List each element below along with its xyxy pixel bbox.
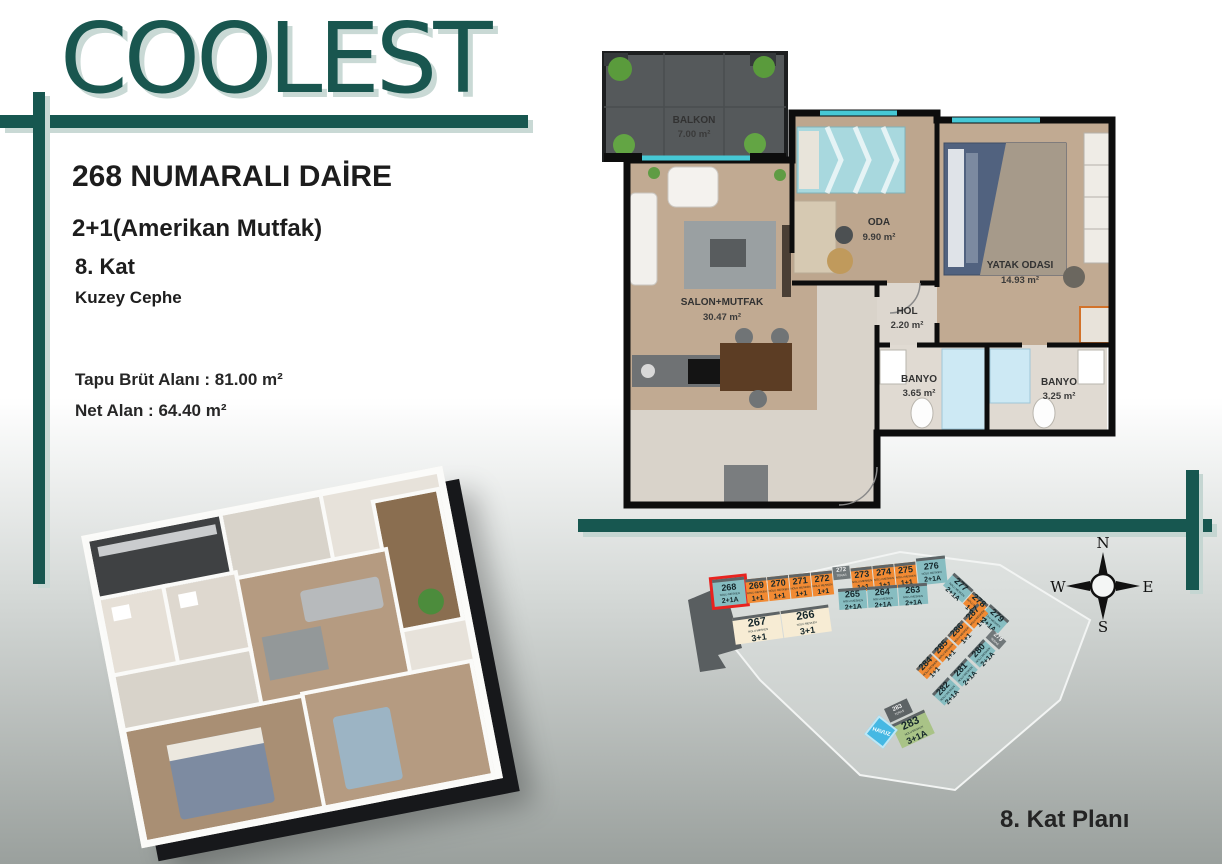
gross-area-value: 81.00 m² [215, 370, 283, 389]
room-label-salon: SALON+MUTFAK [681, 297, 764, 308]
cabinet [724, 465, 768, 503]
gross-area-label: Tapu Brüt Alanı : [75, 370, 210, 389]
floorplan-2d: BALKON 7.00 m² SALON+MUTFAK 30.47 m² ODA… [592, 25, 1122, 517]
brand-logo: COOLEST [60, 2, 489, 115]
unit-number: 265 [845, 589, 861, 599]
room-area-hol: 2.20 m² [891, 320, 924, 331]
room-area-yatak: 14.93 m² [1001, 275, 1039, 286]
unit-type: 1+1 [795, 590, 808, 598]
apartment-floor: 8. Kat [75, 254, 135, 280]
compass-circle [1091, 574, 1115, 598]
render-bathroom-2 [165, 575, 249, 665]
siteplan-unit-264[interactable]: 264 NOLU MESKEN 2+1A [867, 585, 898, 608]
plant-icon [744, 133, 766, 155]
sofa [630, 193, 657, 285]
teras-label: TERAS [837, 574, 847, 578]
siteplan-unit-268[interactable]: 268 NOLU MESKEN 2+1A [712, 577, 747, 607]
room-label-banyo2: BANYO [1041, 377, 1077, 388]
pillow [966, 153, 978, 263]
plant-icon [753, 56, 775, 78]
stove [688, 359, 722, 384]
divider-horizontal-bottom [578, 519, 1212, 532]
unit-type: 1+1 [773, 592, 786, 600]
plant-icon [648, 167, 660, 179]
plant-icon [613, 134, 635, 156]
pillow [948, 149, 964, 267]
net-area-value: 64.40 m² [158, 401, 226, 420]
unit-type: 2+1A [875, 601, 892, 609]
compass-arrow-w [1066, 581, 1090, 591]
dining-table [720, 343, 792, 391]
plant-icon [608, 57, 632, 81]
room-area-banyo1: 3.65 m² [903, 388, 936, 399]
unit-number: 264 [875, 587, 891, 597]
apartment-type: 2+1(Amerikan Mutfak) [72, 215, 322, 243]
page-title: 268 NUMARALI DAİRE [72, 160, 392, 194]
siteplan-teras-272[interactable]: 272 TERAS [832, 566, 850, 581]
pillow [799, 131, 819, 189]
compass-w: W [1050, 578, 1066, 596]
divider-horizontal-top [0, 115, 528, 128]
toilet [911, 398, 933, 428]
page: COOLEST 268 NUMARALI DAİRE 2+1(Amerikan … [0, 0, 1222, 864]
shower [942, 349, 986, 429]
apartment-facade: Kuzey Cephe [75, 288, 182, 308]
compass-s: S [1098, 618, 1108, 636]
room-area-balkon: 7.00 m² [678, 129, 711, 140]
divider-vertical-left [33, 92, 45, 584]
unit-type: 2+1A [721, 596, 739, 605]
compass-arrow-e [1116, 581, 1140, 591]
unit-type: 2+1A [905, 599, 922, 607]
siteplan-unit-270[interactable]: 270 NOLU MESKEN 1+1 [767, 575, 790, 601]
unit-number: 276 [923, 561, 939, 572]
siteplan-unit-272[interactable]: 272 NOLU MESKEN 1+1 [811, 570, 834, 596]
compass-arrow-s [1098, 598, 1108, 620]
shower [990, 349, 1030, 403]
siteplan-unit-271[interactable]: 271 NOLU MESKEN 1+1 [789, 573, 812, 599]
siteplan-unit-263[interactable]: 263 NOLU MESKEN 2+1A [898, 583, 928, 606]
bathroom-sink [1078, 350, 1104, 384]
round-rug [1063, 266, 1085, 288]
render-3d [81, 466, 503, 848]
compass-arrow-n [1098, 552, 1108, 576]
room-area-oda: 9.90 m² [863, 232, 896, 243]
divider-vertical-right [1186, 470, 1199, 590]
desk-chair [835, 226, 853, 244]
unit-number: 263 [905, 585, 921, 595]
toilet [1033, 398, 1055, 428]
room-label-yatak: YATAK ODASI [987, 260, 1054, 271]
round-rug [827, 248, 853, 274]
unit-number: 268 [721, 582, 737, 593]
unit-type: 1+1 [817, 588, 830, 596]
room-area-salon: 30.47 m² [703, 312, 741, 323]
room-label-balkon: BALKON [673, 115, 716, 126]
siteplan-unit-269[interactable]: 269 NOLU MESKEN 1+1 [745, 577, 768, 603]
armchair [668, 167, 718, 207]
compass-rose: N S W E [1046, 532, 1160, 636]
net-area-line: Net Alan : 64.40 m² [75, 401, 227, 421]
room-label-oda: ODA [868, 217, 890, 228]
siteplan-unit-276[interactable]: 276 NOLU MESKEN 2+1A [916, 556, 948, 586]
siteplan-unit-265[interactable]: 265 NOLU MESKEN 2+1A [838, 587, 867, 610]
siteplan-caption: 8. Kat Planı [1000, 806, 1129, 834]
compass-e: E [1143, 578, 1154, 596]
room-label-hol: HOL [896, 306, 917, 317]
compass-n: N [1096, 534, 1109, 552]
gross-area-line: Tapu Brüt Alanı : 81.00 m² [75, 370, 283, 390]
kitchen-sink [641, 364, 655, 378]
room-area-banyo2: 3.25 m² [1043, 391, 1076, 402]
corridor-tile-floor [817, 283, 877, 410]
wardrobe [1084, 133, 1110, 263]
room-label-banyo1: BANYO [901, 374, 937, 385]
net-area-label: Net Alan : [75, 401, 154, 420]
plant-icon [774, 169, 786, 181]
pool-label: HAVUZ [871, 726, 890, 737]
unit-type: 1+1 [751, 595, 764, 603]
unit-type: 2+1A [845, 603, 862, 611]
dresser [1080, 307, 1110, 343]
coffee-table [710, 239, 746, 267]
chair [749, 390, 767, 408]
